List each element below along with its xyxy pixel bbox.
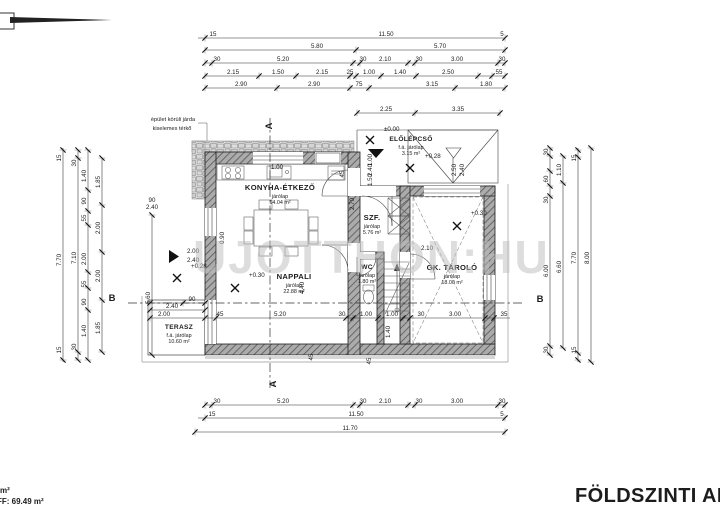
dim-label: 3.00 xyxy=(451,56,464,63)
dim-chain: 1511.505 xyxy=(198,411,508,421)
svg-text:ELŐLÉPCSŐ: ELŐLÉPCSŐ xyxy=(389,134,432,143)
dim-label: 15 xyxy=(210,31,217,38)
dim-label: 45 xyxy=(217,311,224,318)
dim-label: 15 xyxy=(571,154,578,161)
dim-label: 11.50 xyxy=(348,411,364,418)
dim-chain: 2.40 xyxy=(147,303,207,313)
toilet xyxy=(363,285,374,304)
dim-label: 5.20 xyxy=(277,56,290,63)
level-marker: +0.30 xyxy=(453,210,487,230)
dim-label: 2.10 xyxy=(379,398,392,405)
svg-text:TERASZ: TERASZ xyxy=(165,324,193,331)
dim-label: 1.80 xyxy=(480,81,493,88)
dim-chain: 2.253.35 xyxy=(354,106,502,116)
dim-label: 5.60 xyxy=(145,291,152,304)
dim-label: 1.10 xyxy=(556,163,563,176)
svg-text:14.04 m²: 14.04 m² xyxy=(269,200,290,206)
dim-label: 2.50 xyxy=(442,69,455,76)
dim-label: 5.20 xyxy=(277,398,290,405)
section-letter: B xyxy=(537,294,544,305)
svg-text:kiselemes térkő: kiselemes térkő xyxy=(153,126,192,132)
corner-note-line2: FF: 69.49 m² xyxy=(0,497,44,506)
drawing-title: FÖLDSZINTI AL xyxy=(575,484,720,507)
dim-label: 7.10 xyxy=(71,251,78,264)
dim-label: 2.00 xyxy=(95,221,102,234)
dim-label: 3.35 xyxy=(452,106,465,113)
svg-text:±0.00: ±0.00 xyxy=(384,126,400,133)
dim-label: 45 xyxy=(339,170,346,177)
dim-label: 30 xyxy=(71,343,78,350)
dim-label: 2.25 xyxy=(380,106,393,113)
dim-label: 7.70 xyxy=(571,251,578,264)
dim-label: 5.80 xyxy=(311,43,324,50)
dim-label: 5 xyxy=(500,31,504,38)
dim-label: 15 xyxy=(56,346,63,353)
dim-label: 60 xyxy=(543,175,550,182)
dim-label: 55 xyxy=(496,69,503,76)
dim-label: 1.00 xyxy=(360,311,373,318)
dim-label: 75 xyxy=(356,81,363,88)
dim-label: 45 xyxy=(366,357,373,364)
dim-label: 2.00 xyxy=(81,252,88,265)
dim-label: 90 xyxy=(81,197,88,204)
room-label: KONYHA-ÉTKEZŐjárólap14.04 m² xyxy=(245,183,315,206)
dim-chain: 305.20302.10303.0030 xyxy=(202,398,507,408)
dim-label: 2.00 xyxy=(95,269,102,282)
svg-text:+0.28: +0.28 xyxy=(425,153,441,160)
dim-label: 30 xyxy=(543,196,550,203)
dim-label: 25 xyxy=(347,69,354,76)
dim-label: 5.20 xyxy=(274,311,287,318)
dim-label: 2.10 xyxy=(379,56,392,63)
dim-label: 45 xyxy=(308,353,315,360)
dim-label: 2.70 xyxy=(349,197,356,210)
dim-chain: 2.00455.20301.001.00303.0035 xyxy=(147,311,510,321)
dim-label: 11.50 xyxy=(378,31,394,38)
walkway-note: épület körüli járda kiselemes térkő xyxy=(151,117,207,141)
dim-label: 2.90 xyxy=(308,81,321,88)
dim-chain: 157.7015 xyxy=(56,147,67,362)
dim-label: 2.50 xyxy=(451,163,458,176)
north-arrow-symbol xyxy=(0,13,112,29)
dim-label: 30 xyxy=(71,159,78,166)
dim-label: 3.00 xyxy=(449,311,462,318)
dim-label: 30 xyxy=(360,398,367,405)
dim-label: 35 xyxy=(501,311,508,318)
dim-label: 30 xyxy=(214,56,221,63)
svg-text:KONYHA-ÉTKEZŐ: KONYHA-ÉTKEZŐ xyxy=(245,183,315,192)
dim-label: 1.00 xyxy=(386,311,399,318)
section-letter: A xyxy=(268,380,279,387)
dim-chain: 307.1030 xyxy=(71,147,82,362)
terrace-entrance-arrow xyxy=(169,250,179,263)
svg-text:+0.30: +0.30 xyxy=(471,210,487,217)
corner-note-line1: m² xyxy=(0,486,10,495)
dim-label: 30 xyxy=(543,148,550,155)
dim-chain: 157.7015 xyxy=(571,147,582,362)
watermark: UJOTTHON:HU xyxy=(193,231,550,283)
dim-label: 11.70 xyxy=(342,425,358,432)
dim-label: 90 xyxy=(149,197,156,204)
dim-label: 90 xyxy=(81,298,88,305)
dim-label: 2.40 xyxy=(146,204,159,211)
svg-text:épület körüli járda: épület körüli járda xyxy=(151,117,196,123)
dim-chain: 8.00 xyxy=(584,145,595,364)
dim-label: 30 xyxy=(416,56,423,63)
dim-label: 30 xyxy=(499,398,506,405)
dim-label: 1.85 xyxy=(95,175,102,188)
dim-label: 1.00 xyxy=(363,69,376,76)
dim-label: 7.70 xyxy=(56,253,63,266)
dim-label: 30 xyxy=(416,398,423,405)
dim-label: 15 xyxy=(56,154,63,161)
dim-label: 30 xyxy=(499,56,506,63)
dim-label: 1.85 xyxy=(95,321,102,334)
dim-label: 3.00 xyxy=(451,398,464,405)
dim-chain: 11.70 xyxy=(192,425,507,435)
dim-label: 1.40 xyxy=(394,69,407,76)
dim-label: 15 xyxy=(209,411,216,418)
hob xyxy=(222,166,244,179)
dim-chain: 5.60 xyxy=(145,212,156,357)
dim-label: 1.50 xyxy=(367,173,374,186)
dim-label: 30 xyxy=(418,311,425,318)
floor-plan-sheet: épület körüli járda kiselemes térkő 1511… xyxy=(0,0,720,510)
dim-label: 2.40 xyxy=(166,303,179,310)
svg-text:SZF.: SZF. xyxy=(364,213,381,222)
dim-label: 5 xyxy=(500,411,504,418)
dim-label: 30 xyxy=(543,346,550,353)
dim-label: 2.40 xyxy=(459,163,466,176)
dim-chain: 5.805.70 xyxy=(202,43,507,53)
dim-label: 3.15 xyxy=(426,81,439,88)
dim-label: 55 xyxy=(81,280,88,287)
dim-chain: 1511.505 xyxy=(198,31,508,41)
plinth-band xyxy=(205,355,495,359)
dim-chain: 305.20302.10303.0030 xyxy=(202,56,507,66)
dim-label: 1.40 xyxy=(81,324,88,337)
dim-label: 5.70 xyxy=(434,43,447,50)
dim-label: 2.90 xyxy=(235,81,248,88)
dim-chain: 1.4090552.0055901.40 xyxy=(81,147,92,362)
dim-label: 2.15 xyxy=(316,69,329,76)
section-letter: A xyxy=(264,122,275,129)
dim-chain: 1.852.002.001.85 xyxy=(95,155,106,354)
dim-label: 1.50 xyxy=(272,69,285,76)
svg-text:3.15 m²: 3.15 m² xyxy=(402,151,420,157)
svg-text:10.60 m²: 10.60 m² xyxy=(168,339,189,345)
dim-label: 8.00 xyxy=(584,251,591,264)
dim-label: 55 xyxy=(81,214,88,221)
dim-label: 4.40 xyxy=(299,281,306,294)
dim-chain: 2.151.502.15251.001.402.5055 xyxy=(202,69,507,79)
floor-plan-canvas: épület körüli járda kiselemes térkő 1511… xyxy=(0,0,720,510)
dim-chain: 1.106.60 xyxy=(556,153,567,350)
dim-chain: 2.902.90753.151.80 xyxy=(202,81,507,91)
dim-label: 90 xyxy=(189,296,196,303)
dim-label: 30 xyxy=(339,311,346,318)
dim-label: 2.00 xyxy=(158,311,171,318)
section-letter: B xyxy=(109,293,116,304)
dim-label: 1.40 xyxy=(81,169,88,182)
dim-label: 15 xyxy=(571,346,578,353)
dim-label: 30 xyxy=(360,56,367,63)
dim-label: 30 xyxy=(214,398,221,405)
room-label: TERASZf.á. járólap10.60 m² xyxy=(165,324,193,345)
dim-label: 1.00 xyxy=(271,164,284,171)
dim-label: 6.60 xyxy=(556,260,563,273)
dim-label: 1.40 xyxy=(385,325,392,338)
dim-label: 2.15 xyxy=(227,69,240,76)
